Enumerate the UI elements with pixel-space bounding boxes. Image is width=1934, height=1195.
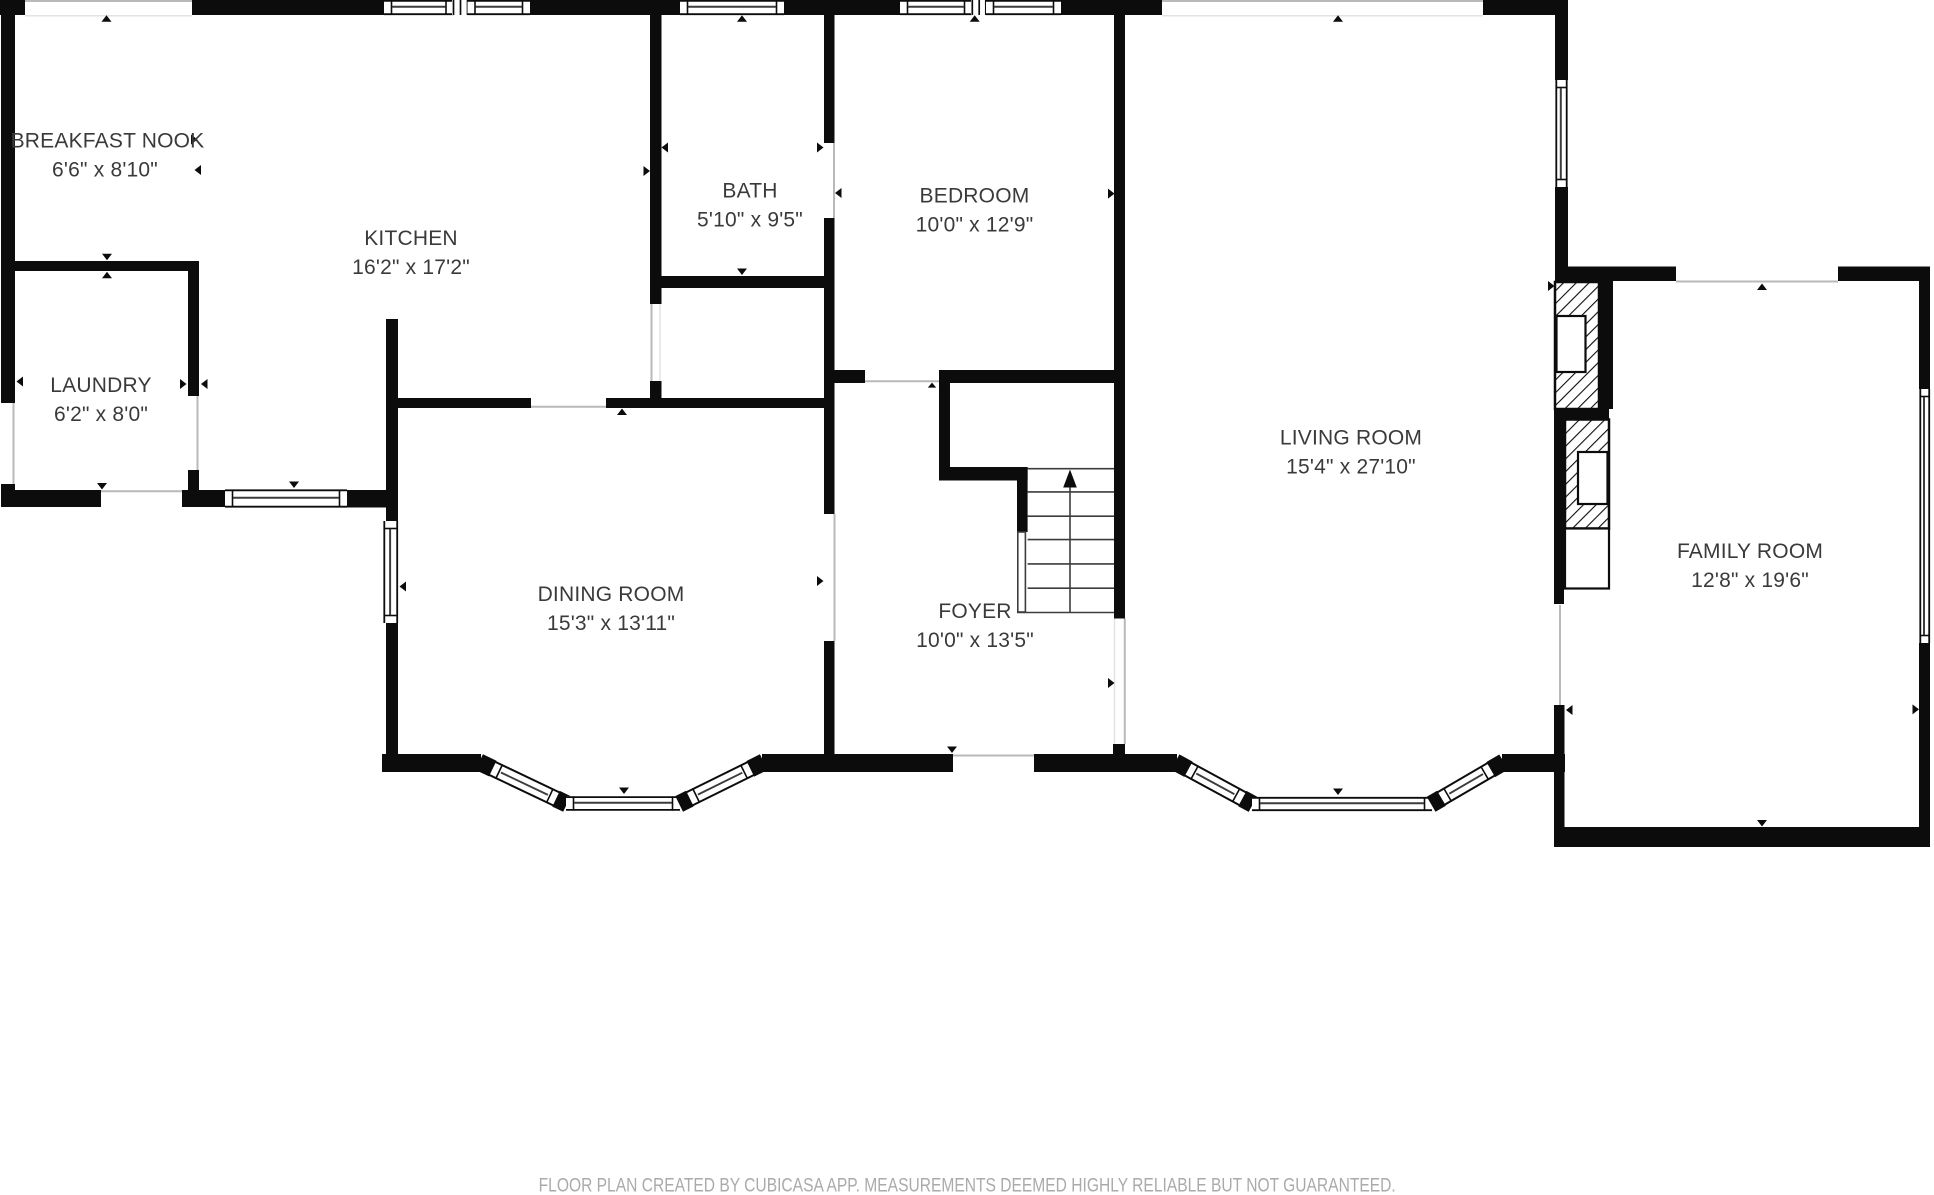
svg-text:LIVING ROOM: LIVING ROOM	[1280, 427, 1422, 450]
svg-text:FOYER: FOYER	[938, 600, 1011, 623]
svg-text:12'8" x 19'6": 12'8" x 19'6"	[1691, 569, 1809, 592]
svg-text:16'2" x 17'2": 16'2" x 17'2"	[352, 256, 470, 279]
svg-text:BREAKFAST NOOK: BREAKFAST NOOK	[11, 130, 205, 153]
svg-text:15'4" x 27'10": 15'4" x 27'10"	[1286, 456, 1416, 479]
svg-text:6'2" x 8'0": 6'2" x 8'0"	[54, 403, 148, 426]
svg-text:FLOOR PLAN CREATED BY CUBICASA: FLOOR PLAN CREATED BY CUBICASA APP. MEAS…	[539, 1174, 1396, 1195]
svg-text:FAMILY ROOM: FAMILY ROOM	[1677, 540, 1823, 563]
svg-text:BATH: BATH	[722, 180, 777, 203]
svg-text:BEDROOM: BEDROOM	[920, 185, 1030, 208]
svg-text:LAUNDRY: LAUNDRY	[50, 374, 151, 397]
svg-text:DINING ROOM: DINING ROOM	[538, 583, 685, 606]
svg-text:6'6" x 8'10": 6'6" x 8'10"	[52, 159, 158, 182]
svg-text:10'0" x 13'5": 10'0" x 13'5"	[916, 629, 1034, 652]
svg-text:10'0" x 12'9": 10'0" x 12'9"	[916, 214, 1034, 237]
svg-text:5'10" x 9'5": 5'10" x 9'5"	[697, 209, 803, 232]
svg-text:15'3" x 13'11": 15'3" x 13'11"	[547, 612, 675, 635]
svg-text:KITCHEN: KITCHEN	[364, 227, 458, 250]
